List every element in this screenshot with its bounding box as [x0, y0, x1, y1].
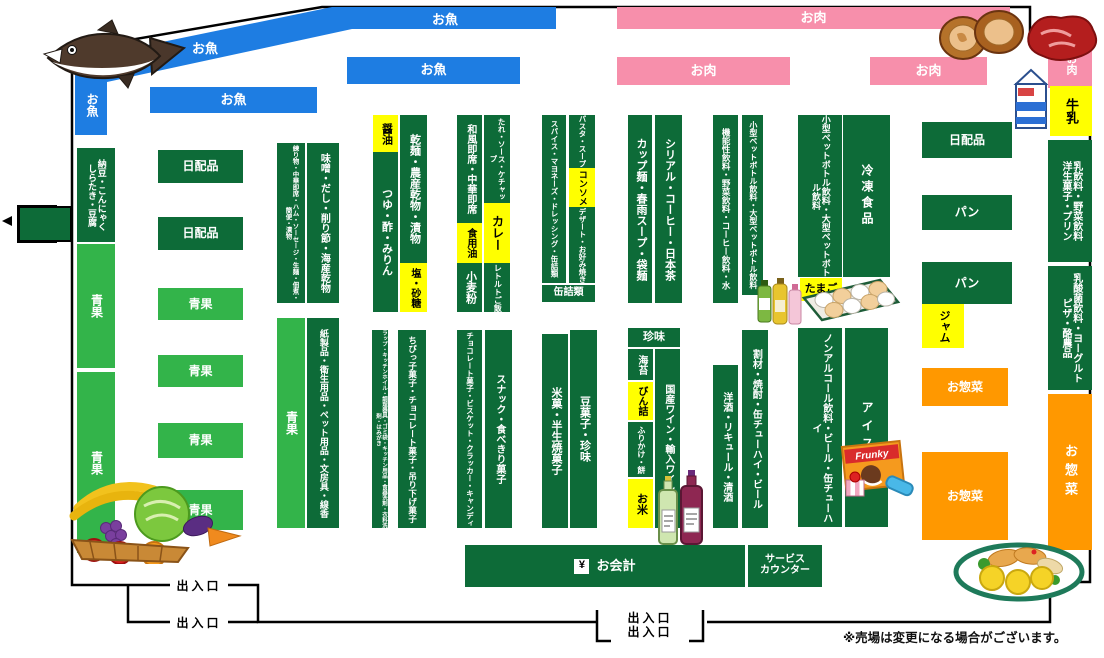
chocolate-biscuit-aisle: チョコレート菓子・ビスケット・クラッカー・キャンディ [457, 330, 482, 528]
shochu-beer-aisle: 割材・焼酎・缶チューハイ・ビール [742, 330, 768, 528]
egg-pack-illustration [800, 262, 902, 326]
dessert-aisle: デザート・お好み焼き [569, 207, 595, 283]
canned-goods-label: 缶詰類 [542, 285, 595, 302]
spice-mayo-aisle: スパイス・マヨネーズ・ドレッシング・缶詰類 [542, 115, 566, 283]
yen-icon: ¥ [574, 559, 589, 574]
flour-aisle: 小麦粉 [457, 263, 482, 312]
pet-bottles-illustration [754, 268, 804, 326]
ice-cream-illustration: Frunky [838, 434, 918, 502]
daily-goods-area: 日配品 [922, 122, 1012, 158]
cup-noodle-aisle: カップ麺・春雨スープ・袋麺 [628, 115, 652, 303]
natto-tofu-aisle: 納豆・こんにゃく しらたき・豆腐 [77, 148, 115, 242]
vegetable-basket-illustration [62, 466, 262, 564]
jarred-food-highlight: びん詰 [628, 382, 653, 420]
produce-area: 青果 [158, 423, 243, 458]
functional-drink-aisle: 機能性飲料・野菜飲料・コーヒー飲料・水 [713, 115, 738, 303]
yogurt-aisle: 乳酸菌飲料・ヨーグルト ピザ・酪農品 [1048, 266, 1092, 390]
entrance-label: 出入口 [170, 578, 228, 592]
meat-counter: お肉 [617, 57, 790, 85]
milk-area: 牛乳 [1050, 86, 1092, 136]
furikake-mochi-aisle: ふりかけ・餅 [628, 422, 653, 477]
cooking-oil-highlight: 食用油 [457, 223, 482, 263]
bread-area: パン [922, 262, 1012, 304]
backroom-block [18, 206, 72, 242]
wine-bottles-illustration [655, 468, 711, 548]
entrance-label: 出入口 [618, 625, 682, 638]
wrap-kitchen-aisle: ラップ・キッチンホイル・調理器具・ゴミ袋・キッチン用品・食器洗剤・衣料洗剤・はみ… [372, 330, 388, 528]
frozen-food-aisle: 冷凍食品 [843, 115, 890, 277]
deli-area: お惣菜 [922, 368, 1008, 406]
paper-hygiene-aisle: 紙製品・衛生用品・ペット用品・文房具・線香 [307, 318, 339, 528]
bean-snack-aisle: 豆菓子・珍味 [570, 330, 597, 528]
fish-band-label: お魚 [390, 8, 500, 28]
deli-plate-illustration [952, 522, 1087, 610]
liquor-sake-aisle: 洋酒・リキュール・清酒 [713, 365, 738, 528]
rice-cracker-aisle: 米菓・半生焼菓子 [542, 334, 568, 528]
checkout-counter: ¥ お会計 [465, 545, 745, 587]
nonalcohol-beer-aisle: ノンアルコール飲料・ビール・缶チューハイ [798, 328, 842, 527]
salt-sugar-highlight: 塩・砂糖 [400, 263, 427, 312]
dried-noodle-aisle: 乾麺・農産乾物・漬物 [400, 115, 427, 263]
milk-carton-illustration [1006, 62, 1056, 134]
tuna-fish-illustration [40, 16, 195, 104]
curry-highlight: カレー [484, 203, 510, 263]
delicacy-label: 珍味 [628, 328, 680, 347]
checkout-label: お会計 [596, 559, 635, 573]
retort-rice-aisle: レトルトご飯 [484, 263, 510, 312]
pet-bottle-aisle: 小型ペットボトル飲料・大型ペットボトル飲料 [798, 115, 842, 277]
daily-goods-area: 日配品 [158, 217, 243, 250]
snack-aisle: スナック・食べきり菓子 [485, 330, 512, 528]
store-floor-map: お魚 お魚 お魚 お魚 お魚 お肉 お肉 お肉 お肉 牛乳 乳飲料・野菜飲料 洋… [0, 0, 1104, 658]
bread-area: パン [922, 195, 1012, 230]
daily-goods-area: 日配品 [158, 150, 243, 183]
kids-snack-aisle: ちびっ子菓子・チョコレート菓子・吊り下げ菓子 [398, 330, 426, 528]
instant-food-aisle: 和風即席・中華即席 [457, 115, 482, 223]
pasta-soup-aisle: パスタ・スープ [569, 115, 595, 168]
fish-counter: お魚 [347, 57, 520, 84]
service-counter: サービス カウンター [748, 545, 822, 587]
map-disclaimer: ※売場は変更になる場合がございます。 [843, 627, 1104, 646]
nori-aisle: 海苔 [628, 349, 653, 380]
sauce-ketchup-aisle: たれ・ソース・ケチャップ [484, 115, 510, 203]
consomme-highlight: コンソメ [569, 168, 595, 207]
entrance-label: 出入口 [170, 615, 228, 629]
miso-dashi-aisle: 味噌・だし・削り節・海産乾物 [307, 143, 339, 303]
produce-aisle: 青果 [277, 318, 305, 528]
milk-drink-aisle: 乳飲料・野菜飲料 洋生菓子・プリン [1048, 140, 1092, 262]
neriimono-aisle: 練り物・中華即席・ハム・ソーセージ・生麺・佃煮・簡便・漬物 [277, 143, 305, 303]
meat-illustration [933, 4, 1103, 66]
produce-area: 青果 [158, 288, 243, 320]
tsuyu-vinegar-aisle: つゆ・酢・みりん [373, 152, 398, 312]
produce-area: 青果 [158, 355, 243, 387]
produce-wall-area: 青果 [77, 244, 115, 368]
soysauce-highlight: 醤油 [373, 115, 398, 152]
cereal-coffee-aisle: シリアル・コーヒー・日本茶 [655, 115, 682, 303]
jam-highlight: ジャム [922, 304, 964, 348]
rice-highlight: お米 [628, 479, 653, 528]
